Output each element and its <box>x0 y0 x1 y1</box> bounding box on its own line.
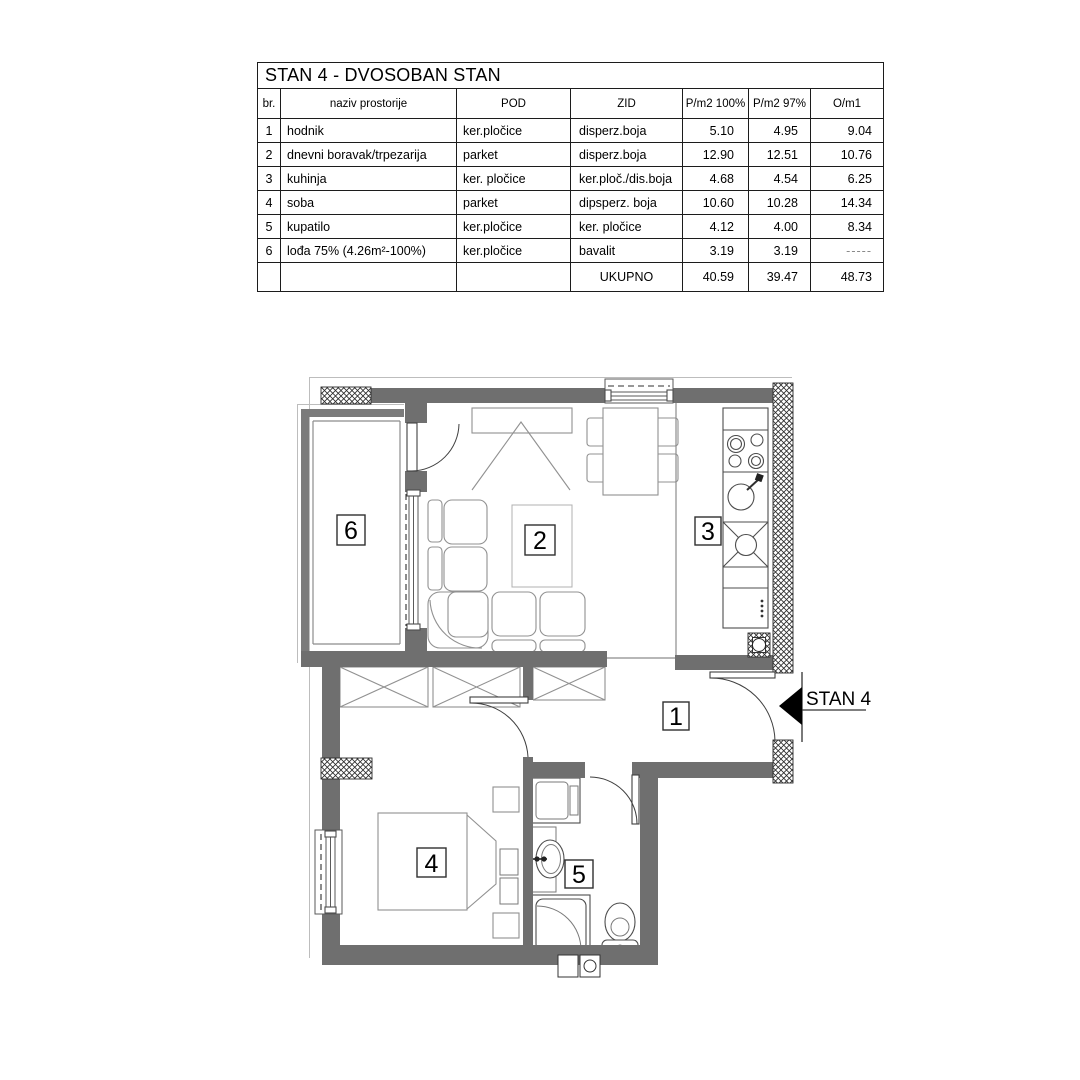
room-label-bathroom: 5 <box>565 860 593 889</box>
entrance-label: STAN 4 <box>806 689 872 710</box>
room-label-hallway: 1 <box>663 702 689 731</box>
floorplan-drawing: 6 2 3 1 4 5 <box>0 0 1080 1080</box>
wardrobe <box>533 667 605 700</box>
svg-text:5: 5 <box>572 861 586 889</box>
nightstand <box>493 913 519 938</box>
svg-text:3: 3 <box>701 518 715 546</box>
bathroom-door <box>590 775 639 824</box>
dining-table <box>603 408 658 495</box>
bedroom-window <box>315 830 342 914</box>
room-label-loggia: 6 <box>337 515 365 545</box>
kitchen-shaft <box>748 633 770 657</box>
entrance-door <box>710 672 775 741</box>
loggia-window <box>406 490 420 630</box>
wardrobe <box>340 667 428 707</box>
balcony-door <box>407 423 459 471</box>
kitchen-counter <box>723 408 768 628</box>
washing-machine <box>532 778 580 823</box>
svg-text:6: 6 <box>344 517 358 545</box>
room-label-kitchen: 3 <box>695 517 721 546</box>
svg-text:4: 4 <box>425 850 439 878</box>
bed <box>378 787 519 938</box>
bathroom-sink <box>531 827 564 892</box>
nightstand <box>493 787 519 812</box>
entrance-arrow-icon <box>779 687 802 725</box>
tv-cabinet <box>472 408 572 490</box>
room-label-living: 2 <box>525 525 555 555</box>
room-label-bedroom: 4 <box>417 848 446 878</box>
tv-view-lines <box>472 422 570 490</box>
svg-text:1: 1 <box>669 703 683 731</box>
kitchen-window <box>605 379 673 403</box>
dining-set <box>587 408 678 495</box>
svg-text:2: 2 <box>533 527 547 555</box>
floorplan-page: STAN 4 - DVOSOBAN STAN br. naziv prostor… <box>0 0 1080 1080</box>
entrance-marker: STAN 4 <box>779 672 872 742</box>
